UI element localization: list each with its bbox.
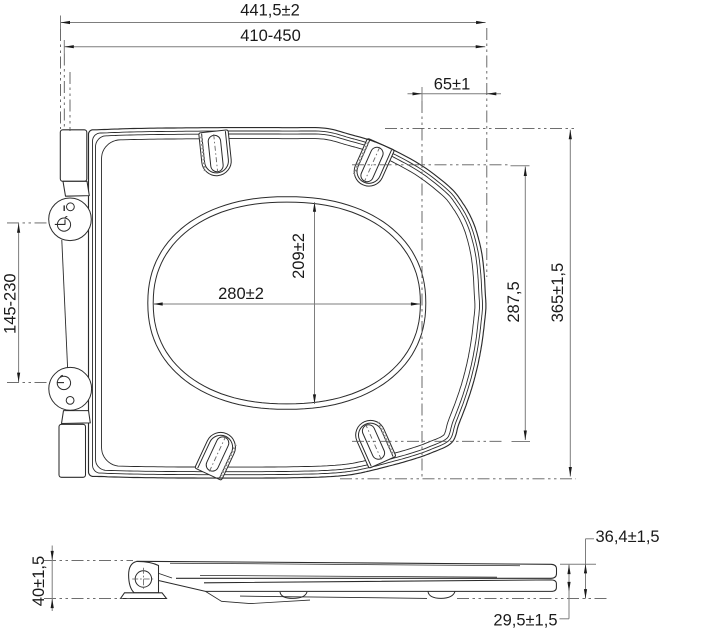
svg-text:287,5: 287,5 [505, 281, 523, 322]
svg-text:410-450: 410-450 [240, 27, 301, 45]
svg-text:365±1,5: 365±1,5 [549, 263, 567, 323]
svg-text:40±1,5: 40±1,5 [30, 556, 48, 606]
svg-text:65±1: 65±1 [434, 76, 471, 94]
svg-text:441,5±2: 441,5±2 [240, 2, 300, 20]
svg-text:36,4±1,5: 36,4±1,5 [596, 528, 660, 546]
svg-text:29,5±1,5: 29,5±1,5 [493, 611, 557, 629]
svg-text:280±2: 280±2 [218, 285, 264, 303]
svg-text:145-230: 145-230 [2, 273, 20, 334]
svg-text:209±2: 209±2 [290, 233, 308, 279]
